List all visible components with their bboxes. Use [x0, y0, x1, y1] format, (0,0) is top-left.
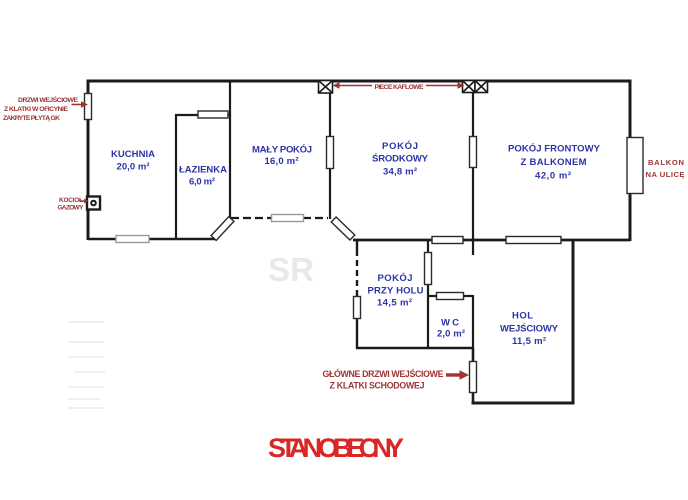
hallroom-door-symbol [354, 297, 361, 319]
gas-boiler-dot [91, 201, 96, 206]
covered-entry-door-symbol [85, 94, 92, 120]
corridor-door-symbol [272, 215, 304, 222]
watermark-text: SR [268, 251, 314, 288]
room-label-lazienka: ŁAZIENKA [179, 165, 227, 176]
frontroom-hall-opening-symbol [506, 237, 561, 244]
hall-swing-door-symbol [331, 217, 355, 240]
room-label-frontowy-2: Z BALKONEM [521, 157, 587, 168]
main-entrance-door-symbol [470, 362, 477, 393]
entrance-arrow-head [460, 370, 470, 379]
room-label-kuchnia: KUCHNIA [111, 149, 155, 160]
annotation-entrance-2: Z KLATKI SCHODOWEJ [330, 381, 425, 391]
floor-plan-page: SR [0, 0, 688, 500]
smallroom-door-symbol [327, 137, 334, 169]
room-label-przy-holu-1: POKÓJ [378, 272, 413, 284]
room-label-srodkowy-1: POKÓJ [382, 140, 418, 152]
vestibule-hallroom-door-symbol [425, 253, 432, 285]
room-area-frontowy: 42,0 m² [535, 171, 571, 182]
room-label-przy-holu-2: PRZY HOLU [368, 286, 424, 297]
annotation-kociol-2: GAZOWY [58, 205, 85, 212]
gas-boiler-icon [87, 197, 100, 210]
page-title: STAN OBECNY [268, 433, 404, 463]
room-area-wc: 2,0 m² [437, 329, 465, 340]
wc-door-symbol [437, 293, 464, 300]
bathroom-window-symbol [198, 111, 228, 118]
annotation-balkon-1: BALKON [648, 158, 684, 167]
annotation-labels: DRZWI WEJŚCIOWE Z KLATKI W OFICYNIE ZAKR… [3, 84, 685, 391]
annotation-balkon-2: NA ULICĘ [646, 170, 685, 179]
room-area-srodkowy: 34,8 m² [383, 167, 417, 178]
annotation-oficyna-1: DRZWI WEJŚCIOWE [18, 95, 78, 104]
room-area-hol: 11,5 m² [512, 336, 546, 347]
floor-plan-drawing: SR [0, 0, 688, 500]
middleroom-door-symbol [470, 137, 477, 168]
room-label-frontowy-1: POKÓJ FRONTOWY [508, 143, 601, 155]
bathroom-swing-door-symbol [211, 217, 234, 241]
room-label-srodkowy-2: ŚRODKOWY [372, 153, 429, 165]
annotation-piece-kaflowe: PIECE KAFLOWE [375, 84, 424, 91]
annotation-oficyna-2: Z KLATKI W OFICYNIE [4, 106, 68, 113]
room-area-przy-holu: 14,5 m² [377, 298, 412, 309]
room-area-lazienka: 6,0 m² [189, 177, 215, 188]
room-label-hol-1: HOL [512, 311, 533, 322]
room-area-kuchnia: 20,0 m² [117, 162, 150, 173]
annotation-kociol-1: KOCIOŁ [59, 197, 83, 204]
annotation-arrows [72, 82, 470, 379]
balcony-symbol [627, 138, 643, 194]
scan-artifacts [68, 322, 105, 408]
kitchen-window-symbol [116, 236, 149, 243]
vestibule-middleroom-door-symbol [432, 237, 463, 244]
room-label-maly-pokoj: MAŁY POKÓJ [252, 144, 312, 156]
annotation-entrance-1: GŁÓWNE DRZWI WEJŚCIOWE [323, 368, 444, 379]
stoves-arrow-left-head [333, 82, 340, 88]
room-label-hol-2: WEJŚCIOWY [500, 323, 559, 335]
room-area-maly-pokoj: 16,0 m² [265, 156, 299, 167]
annotation-oficyna-3: ZAKRYTE PŁYTĄ GK [3, 115, 60, 122]
room-label-wc: WC [441, 318, 459, 329]
